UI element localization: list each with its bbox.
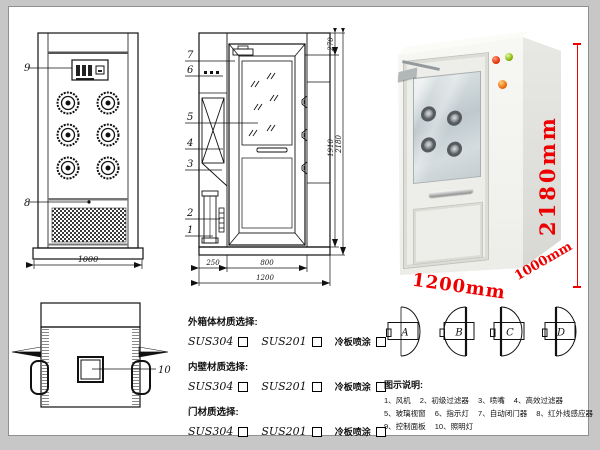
callout-6: 6 — [187, 65, 194, 76]
side-view-drawing: 7 6 5 4 3 2 1 250 800 1200 270 1910 — [183, 28, 348, 293]
primary-filter — [219, 208, 224, 232]
callout-8-dot — [87, 200, 90, 203]
door-option-a: A — [386, 304, 428, 362]
dim-1000: 1000 — [78, 255, 98, 264]
material-section-title: 外箱体材质选择: — [188, 314, 386, 328]
legend-item: 4、高效过滤器 — [514, 396, 563, 405]
callout-9: 9 — [24, 63, 31, 74]
legend-item: 5、玻璃视窗 — [384, 409, 426, 418]
photo-nozzle — [421, 106, 436, 123]
plan-view-outline — [41, 303, 140, 407]
side-height-dimensions: 270 1910 2180 — [305, 33, 345, 255]
photo-nozzle — [421, 137, 436, 154]
control-panel — [72, 60, 108, 80]
side-view-door — [229, 44, 305, 245]
legend-item: 3、喷嘴 — [478, 396, 505, 405]
cabinet-door — [404, 53, 488, 268]
photo-width-label: 1200mm — [399, 268, 519, 305]
datasheet-page: { "colors": {"accent_red": "#ee0000", "l… — [0, 0, 600, 450]
callout-2: 2 — [186, 208, 193, 219]
dim-1910: 1910 — [327, 139, 335, 157]
photo-nozzle — [447, 141, 462, 158]
indicator-dots — [204, 71, 219, 74]
side-bottom-dimensions: 250 800 1200 — [199, 255, 330, 286]
legend-item: 1、风机 — [384, 396, 411, 405]
door-handle — [429, 188, 473, 198]
grille-top-band — [48, 198, 128, 201]
door-option-d: D — [542, 304, 584, 362]
option-label: SUS304 — [188, 380, 233, 393]
air-nozzles — [58, 93, 119, 179]
dim-250: 250 — [205, 259, 220, 267]
photo-nozzle — [447, 110, 462, 127]
callout-7: 7 — [187, 50, 194, 61]
option-label: 冷板喷涂 — [335, 335, 371, 348]
material-options-row: SUS304 SUS201 冷板喷涂 — [188, 380, 386, 393]
legend-line-3: 9、控制面板 10、照明灯 — [384, 420, 596, 433]
hepa-filter-xbrace — [202, 98, 227, 186]
door-option-b: B — [438, 304, 480, 362]
checkbox-door-sus304[interactable] — [238, 427, 248, 437]
legend-item: 10、照明灯 — [435, 422, 473, 431]
emergency-button — [498, 80, 507, 89]
door-glass — [413, 71, 481, 184]
checkbox-outer-sus201[interactable] — [312, 337, 322, 347]
callout-5: 5 — [187, 112, 193, 123]
ceiling-lamp — [78, 357, 103, 382]
material-options-row: SUS304 SUS201 冷板喷涂 — [188, 425, 386, 438]
return-air-grille — [52, 208, 126, 242]
door-option-c: C — [490, 304, 532, 362]
option-label: SUS201 — [261, 380, 306, 393]
checkbox-door-sus201[interactable] — [312, 427, 322, 437]
door-option-letter: A — [400, 328, 408, 339]
checkbox-outer-sus304[interactable] — [238, 337, 248, 347]
material-options-row: SUS304 SUS201 冷板喷涂 — [188, 335, 386, 348]
red-indicator-lamp — [492, 56, 500, 64]
legend-line-2: 5、玻璃视窗 6、指示灯 7、自动闭门器 8、红外线感应器 — [384, 407, 596, 420]
dim-2180: 2180 — [335, 135, 343, 154]
checkbox-inner-sus304[interactable] — [238, 382, 248, 392]
legend-line-1: 1、风机 2、初级过滤器 3、喷嘴 4、高效过滤器 — [384, 394, 596, 407]
checkbox-outer-coldplate[interactable] — [376, 337, 386, 347]
dim-800: 800 — [260, 259, 274, 267]
legend: 图示说明: 1、风机 2、初级过滤器 3、喷嘴 4、高效过滤器 5、玻璃视窗 6… — [384, 378, 596, 433]
material-section-title: 内壁材质选择: — [188, 359, 386, 373]
material-section-title: 门材质选择: — [188, 404, 386, 418]
dim-1200: 1200 — [256, 274, 274, 282]
callout-4: 4 — [186, 138, 193, 149]
legend-item: 9、控制面板 — [384, 422, 426, 431]
plan-view-drawing: 10 — [0, 295, 180, 420]
option-label: 冷板喷涂 — [335, 380, 371, 393]
grille-bottom-band — [48, 244, 128, 246]
checkbox-inner-sus201[interactable] — [312, 382, 322, 392]
door-lower-panel — [414, 203, 482, 264]
front-view-drawing: 9 8 1000 — [18, 28, 183, 278]
product-photo: 2180mm 1200mm 1000mm — [388, 18, 593, 313]
dim-tick-top — [573, 43, 581, 45]
legend-title: 图示说明: — [384, 378, 596, 391]
green-indicator-lamp — [505, 53, 513, 61]
callout-1: 1 — [187, 225, 193, 236]
callout-8: 8 — [24, 198, 30, 209]
material-selection: 外箱体材质选择: SUS304 SUS201 冷板喷涂 内壁材质选择: SUS3… — [188, 314, 386, 438]
door-option-letter: C — [506, 328, 514, 339]
option-label: SUS304 — [188, 335, 233, 348]
option-label: SUS201 — [261, 335, 306, 348]
dim-270: 270 — [327, 37, 335, 52]
glass-reflection-marks — [249, 73, 278, 136]
dim-tick-bottom — [573, 286, 581, 288]
legend-item: 7、自动闭门器 — [478, 409, 527, 418]
option-label: 冷板喷涂 — [335, 425, 371, 438]
door-swing-wings — [12, 347, 168, 357]
legend-item: 6、指示灯 — [435, 409, 469, 418]
door-option-letter: B — [454, 328, 462, 339]
fan-unit — [202, 191, 218, 243]
door-option-letter: D — [556, 328, 565, 339]
option-label: SUS201 — [261, 425, 306, 438]
front-view-top-band — [48, 52, 128, 55]
front-width-dimension: 1000 — [34, 255, 142, 269]
legend-item: 2、初级过滤器 — [420, 396, 469, 405]
callout-10: 10 — [158, 365, 171, 376]
callout-3: 3 — [187, 159, 193, 170]
legend-item: 8、红外线感应器 — [536, 409, 593, 418]
option-label: SUS304 — [188, 425, 233, 438]
door-swing-options: A B C D — [386, 304, 598, 362]
